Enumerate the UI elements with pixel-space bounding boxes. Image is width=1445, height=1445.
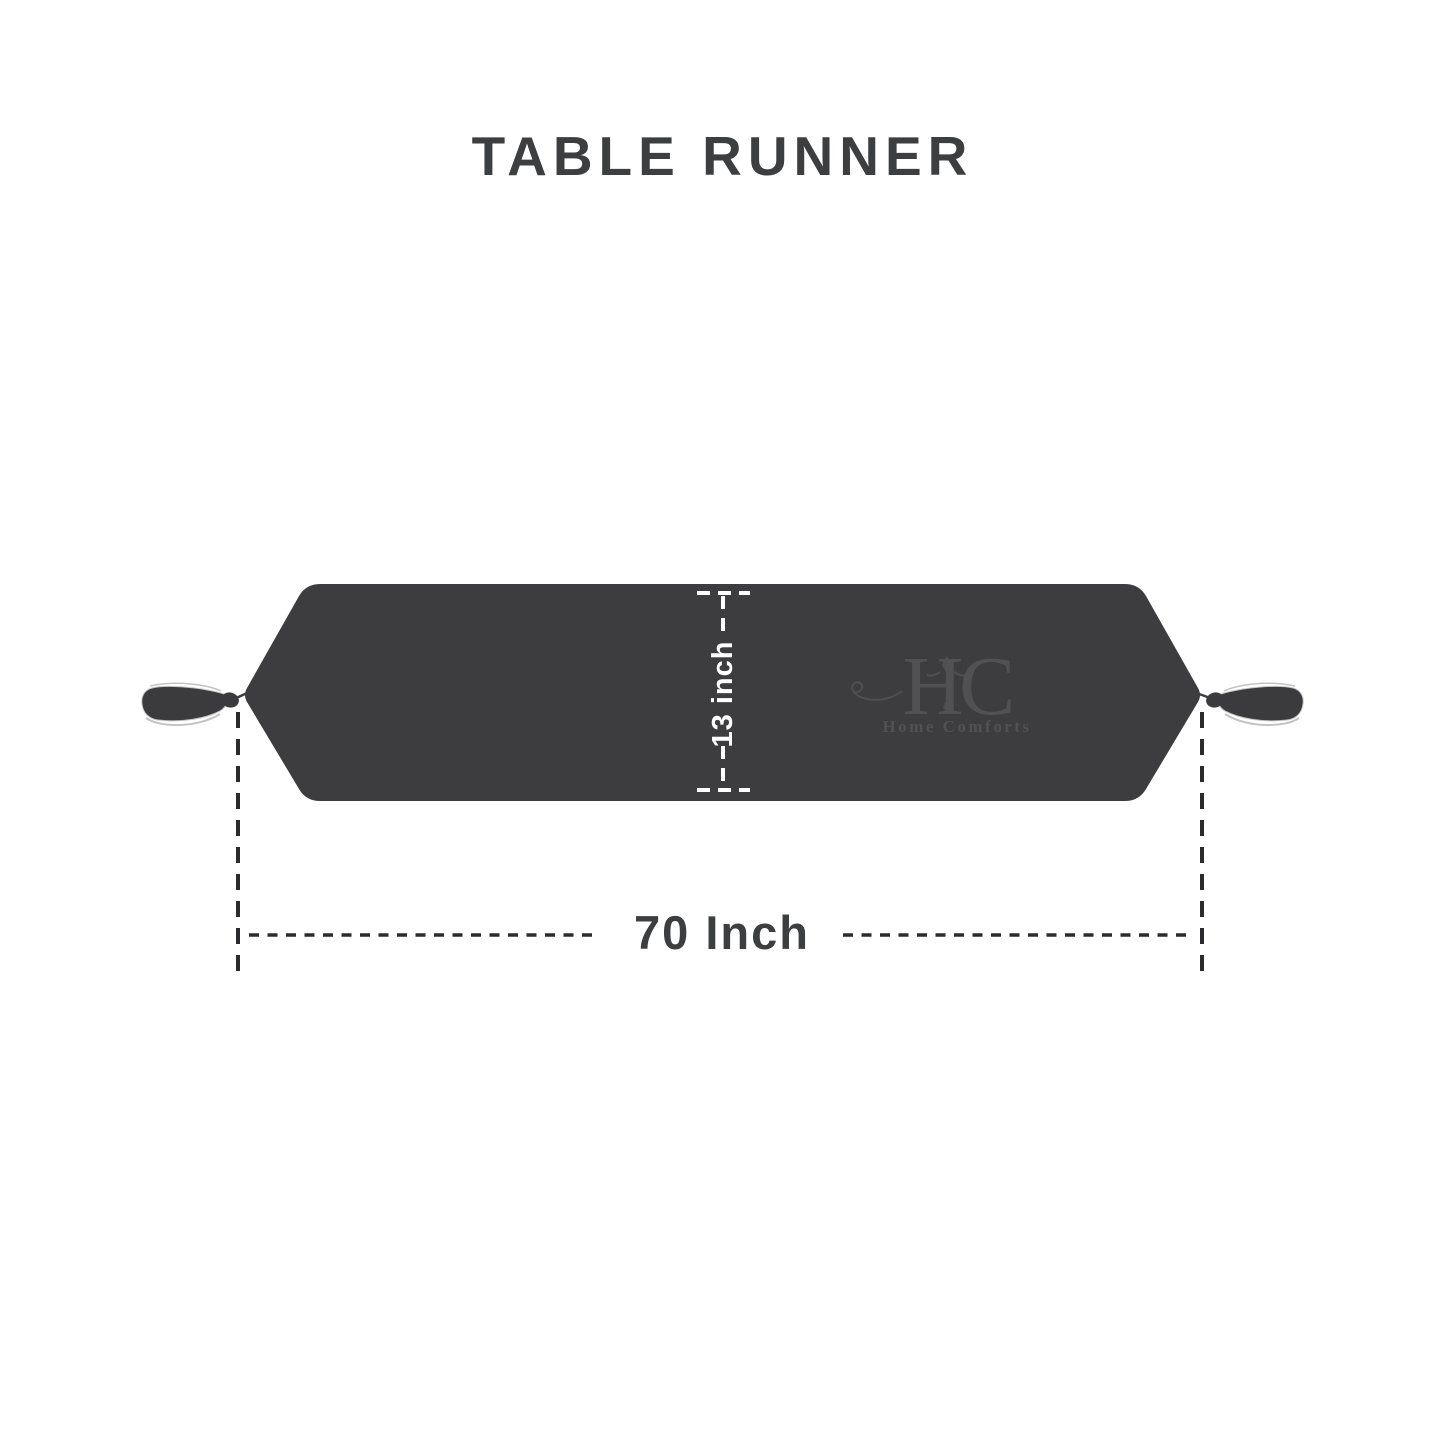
height-dimension-label: 13 inch	[707, 634, 739, 754]
width-dimension-label: 70 Inch	[522, 906, 922, 960]
tassel-left-icon	[142, 683, 247, 725]
tassel-right-icon	[1199, 683, 1303, 725]
product-dimension-diagram: TABLE RUNNER	[0, 0, 1445, 1445]
